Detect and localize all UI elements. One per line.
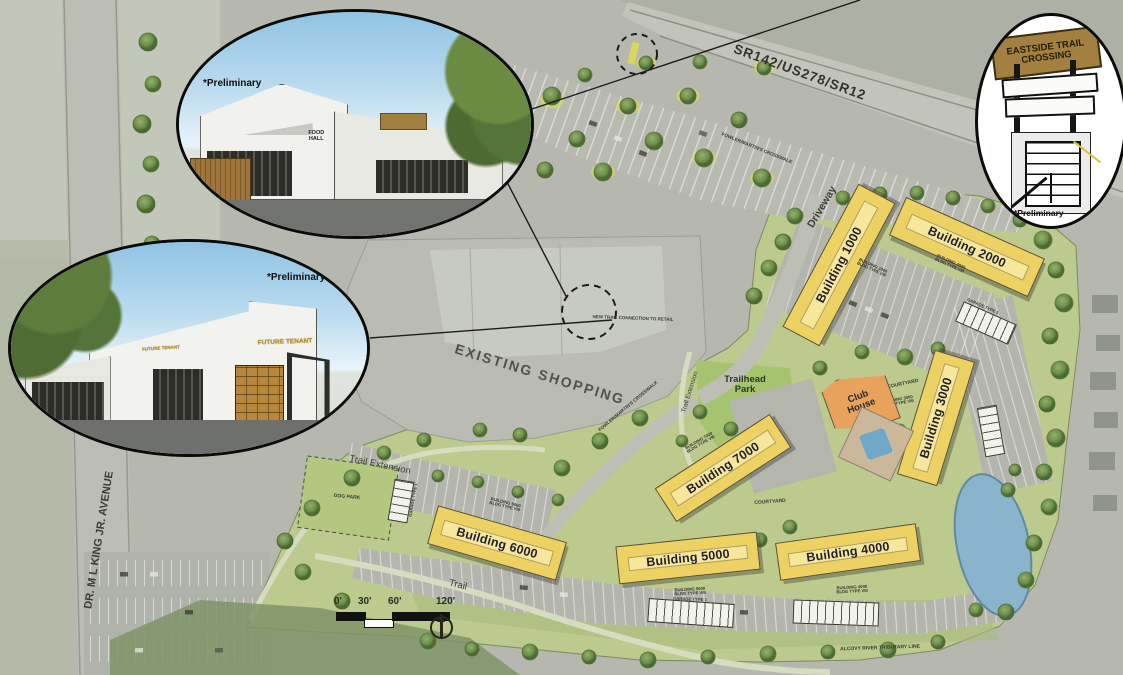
stair-divider [1050,173,1052,203]
building-4000-sublabel: BUILDING 4000 BLDG TYPE VIII [836,585,868,595]
retail-rendering-inset-bottom: FUTURE TENANT FUTURE TENANT *Preliminary [8,239,370,457]
scale-seg-1 [336,612,366,621]
site-plan-canvas: SR142/US278/SR12 DR. M L KING JR. AVENUE… [0,0,1123,675]
rendering-storefront-2 [153,369,203,420]
scale-60: 60' [388,596,402,607]
rendering-tree [432,16,534,173]
future-tenant-sign-right: FUTURE TENANT [258,337,313,346]
eastside-trail-crossing-sign: EASTSIDE TRAIL CROSSING [990,26,1102,81]
rendering-storefront [32,382,103,420]
north-arrow-icon [430,616,453,639]
preliminary-note-bottom-inset: *Preliminary [267,272,325,283]
scale-0: 0' [334,596,342,607]
preliminary-note-top-inset: *Preliminary [203,78,261,89]
rendering-ground [179,200,531,236]
building-4000-label: Building 4000 [805,539,890,565]
garage-row-south-2 [793,600,880,627]
rendering-tree [8,239,139,386]
preliminary-note-crossing-inset: *Preliminary [1014,208,1064,218]
retail-rendering-inset-top: FOOD HALL *Preliminary [176,9,534,239]
rendering-sign-band [380,113,428,131]
trail-crossing-inset: EASTSIDE TRAIL CROSSING *Preliminary [975,13,1123,229]
stair-plan [1025,141,1081,207]
scale-seg-2 [364,619,394,628]
scale-30: 30' [358,596,372,607]
swimming-pool [851,420,901,469]
scale-120: 120' [436,596,455,607]
food-hall-sign: FOOD HALL [308,132,324,144]
rendering-ground [11,420,367,454]
trailhead-park-label: Trailhead Park [724,375,766,395]
building-5000-sublabel: BUILDING 5000 BLDG TYPE VIII [674,587,706,597]
crossing-plan-view [1011,132,1091,214]
scale-bar: 0' 30' 60' 120' [330,596,480,634]
building-5000-label: Building 5000 [646,547,731,570]
sign-board-2 [1005,95,1096,117]
